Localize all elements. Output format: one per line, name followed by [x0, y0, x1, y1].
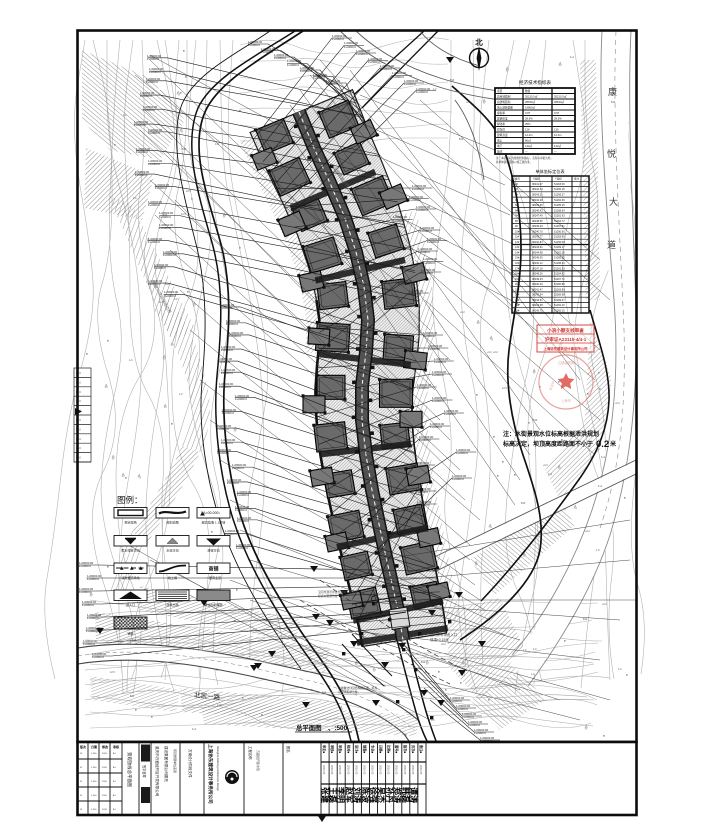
- svg-text:51260.80: 51260.80: [554, 282, 565, 286]
- svg-text:方案设计阶段文件: 方案设计阶段文件: [188, 749, 193, 778]
- svg-text:51263.99: 51263.99: [554, 235, 565, 239]
- svg-text:F+0000.0: F+0000.0: [237, 493, 249, 497]
- svg-text:2016.05: 2016.05: [338, 765, 342, 775]
- svg-text:备注■: 备注■: [419, 744, 424, 753]
- svg-text:F+0000.0: F+0000.0: [146, 80, 158, 84]
- svg-text:15#: 15#: [515, 256, 520, 260]
- svg-text:上海协东建筑设计事务所公司: 上海协东建筑设计事务所公司: [207, 744, 214, 804]
- svg-text:比例■: 比例■: [387, 745, 392, 753]
- svg-text:备注: 备注: [574, 177, 580, 181]
- svg-text:+0.2: +0.2: [585, 530, 590, 533]
- svg-text:F+0000.0: F+0000.0: [344, 45, 356, 49]
- svg-text:51267.81: 51267.81: [554, 224, 565, 228]
- svg-text:126: 126: [525, 128, 530, 132]
- svg-text:F+0000.0: F+0000.0: [415, 464, 427, 468]
- svg-text:F+0000.0: F+0000.0: [219, 385, 231, 389]
- svg-text:项目管理单位盖章: 项目管理单位盖章: [173, 749, 178, 773]
- svg-text:签字盖章: 签字盖章: [142, 765, 147, 779]
- svg-text:16#: 16#: [515, 261, 520, 265]
- svg-text:+0.2: +0.2: [493, 351, 498, 354]
- svg-text:51268.44: 51268.44: [554, 261, 565, 265]
- svg-text:页次■: 页次■: [411, 745, 416, 753]
- svg-text:2016.05: 2016.05: [411, 765, 415, 775]
- svg-text:坝顶+0.15米: 坝顶+0.15米: [430, 637, 449, 642]
- svg-text:出入口: 出入口: [126, 602, 135, 607]
- svg-text:版次■: 版次■: [403, 745, 408, 753]
- svg-text:14#: 14#: [515, 251, 520, 255]
- svg-text:51260.90: 51260.90: [554, 229, 565, 233]
- svg-text:各单体建筑面积以施工图为准。: 各单体建筑面积以施工图为准。: [496, 160, 532, 164]
- svg-text:2016.05: 2016.05: [322, 765, 326, 775]
- svg-text:38246.12: 38246.12: [532, 261, 543, 265]
- svg-text:F+1: F+1: [548, 473, 553, 476]
- svg-text:F+0000.0: F+0000.0: [432, 373, 444, 377]
- svg-text:+0.2: +0.2: [460, 311, 465, 314]
- svg-text:F+0000.0: F+0000.0: [235, 397, 247, 401]
- svg-text:2016.05: 2016.05: [387, 765, 391, 775]
- svg-text:B1F: B1F: [521, 502, 526, 505]
- svg-text:—: —: [525, 151, 528, 154]
- svg-text:51268.54: 51268.54: [554, 208, 565, 212]
- svg-text:F+0000.0: F+0000.0: [221, 441, 233, 445]
- svg-text:38248.26: 38248.26: [532, 272, 543, 276]
- svg-text:20#: 20#: [515, 282, 520, 286]
- svg-text:F+0000.0: F+0000.0: [140, 94, 152, 98]
- svg-text:F+0000.0: F+0000.0: [261, 50, 273, 54]
- svg-text:12.0m: 12.0m: [525, 133, 533, 137]
- svg-text:F+0000.0: F+0000.0: [416, 490, 428, 494]
- svg-text:上海市: 上海市: [561, 398, 571, 403]
- svg-text:2016: 2016: [102, 781, 108, 783]
- svg-text:12.5: 12.5: [186, 190, 191, 193]
- svg-text:楼号: 楼号: [515, 177, 521, 181]
- svg-text:建设集团有限公司委托: 建设集团有限公司委托: [164, 746, 169, 782]
- svg-text:F+0000.0: F+0000.0: [409, 198, 421, 202]
- svg-text:51263.89: 51263.89: [554, 287, 565, 291]
- svg-text:F+0000.0: F+0000.0: [380, 67, 392, 71]
- svg-text:建筑密度: 建筑密度: [497, 117, 508, 121]
- svg-text:1:500: 1:500: [91, 767, 97, 769]
- svg-text:雨水排放方向: 雨水排放方向: [121, 548, 140, 553]
- svg-text:B1F: B1F: [182, 148, 187, 151]
- svg-text:总建筑面积: 总建筑面积: [497, 100, 511, 104]
- svg-text:F+1: F+1: [215, 143, 220, 146]
- svg-text:28.5%: 28.5%: [525, 117, 533, 121]
- svg-text:康: 康: [608, 86, 617, 97]
- svg-text:51267.71: 51267.71: [554, 277, 565, 281]
- svg-text:悦: 悦: [607, 148, 616, 159]
- svg-text:38243.91: 38243.91: [532, 245, 543, 249]
- svg-text:F+0000.0: F+0000.0: [218, 360, 230, 364]
- svg-text:F+0000.0: F+0000.0: [149, 70, 161, 74]
- svg-text:F+0000.0: F+0000.0: [392, 75, 404, 79]
- svg-text:0.2: 0.2: [596, 439, 609, 450]
- svg-text:+0.2: +0.2: [441, 643, 446, 646]
- svg-text:28.5%: 28.5%: [554, 117, 562, 121]
- svg-text:商业内街铺装: 商业内街铺装: [204, 602, 223, 607]
- svg-text:F+0000.0: F+0000.0: [416, 90, 428, 94]
- svg-text:1:500: 1:500: [91, 809, 97, 811]
- svg-text:28640㎡: 28640㎡: [554, 100, 564, 104]
- svg-text:F+0000.0: F+0000.0: [83, 642, 95, 646]
- svg-text:数值: 数值: [525, 89, 531, 93]
- svg-text:建筑出挑: 建筑出挑: [166, 602, 178, 607]
- svg-text:设计■: 设计■: [354, 745, 359, 753]
- svg-text:F+0000.0: F+0000.0: [134, 123, 146, 127]
- svg-text:38244.28: 38244.28: [532, 198, 543, 202]
- svg-text:F+0000.0: F+0000.0: [222, 411, 234, 415]
- svg-text:版次: 版次: [80, 744, 86, 749]
- svg-text:滑坡方向: 滑坡方向: [207, 548, 219, 553]
- svg-text:51264.62: 51264.62: [554, 272, 565, 276]
- svg-text:B1F: B1F: [163, 214, 168, 217]
- svg-text:24#: 24#: [515, 303, 520, 307]
- svg-text:38244.98: 38244.98: [532, 251, 543, 255]
- svg-text:2016.05: 2016.05: [395, 765, 399, 775]
- svg-text:2016.05: 2016.05: [346, 765, 350, 775]
- svg-text:25#: 25#: [515, 308, 520, 312]
- svg-text:铺装: 铺装: [127, 631, 133, 636]
- svg-text:日期■: 日期■: [379, 745, 384, 753]
- svg-text:+0.2: +0.2: [543, 464, 548, 467]
- svg-text:51261.53: 51261.53: [554, 266, 565, 270]
- svg-text:51263.09: 51263.09: [554, 182, 565, 186]
- svg-text:F+0000.0: F+0000.0: [79, 590, 91, 594]
- svg-text:F+0000.0: F+0000.0: [326, 82, 338, 86]
- svg-text:35210.5㎡: 35210.5㎡: [525, 95, 538, 99]
- svg-text:F+0000.0: F+0000.0: [235, 508, 247, 512]
- svg-text:28640㎡: 28640㎡: [525, 100, 535, 104]
- svg-text:F+0000.0: F+0000.0: [236, 546, 248, 550]
- svg-text:+0.2: +0.2: [487, 351, 492, 354]
- svg-text:谭涛: 谭涛: [409, 787, 419, 803]
- svg-text:小浪小额支线审查: 小浪小额支线审查: [547, 327, 584, 334]
- svg-text:上海协东建筑设计事务所公司: 上海协东建筑设计事务所公司: [543, 346, 588, 351]
- svg-text:F+1: F+1: [598, 485, 603, 488]
- svg-text:2016: 2016: [102, 753, 108, 755]
- svg-text:F+0000.0: F+0000.0: [148, 203, 160, 207]
- svg-text:F+0000.0: F+0000.0: [82, 603, 94, 607]
- svg-text:38243.61: 38243.61: [532, 298, 543, 302]
- svg-text:38240.70: 38240.70: [532, 229, 543, 233]
- svg-text:F+0000.0: F+0000.0: [86, 629, 98, 633]
- svg-text:图号■: 图号■: [395, 745, 400, 753]
- svg-text:2016.05: 2016.05: [379, 765, 383, 775]
- svg-text:F+0000.0: F+0000.0: [444, 412, 456, 416]
- svg-text:图名: 图名: [286, 746, 291, 753]
- svg-text:2016.05: 2016.05: [371, 765, 375, 775]
- svg-text:19#: 19#: [515, 277, 520, 281]
- svg-text:2016.05: 2016.05: [403, 765, 407, 775]
- svg-text:F+1: F+1: [322, 691, 327, 694]
- svg-text:标高决定，坝顶高度距路面不小于: 标高决定，坝顶高度距路面不小于: [502, 440, 593, 448]
- svg-text:—: —: [554, 151, 557, 154]
- svg-text:B1F: B1F: [611, 101, 616, 104]
- svg-text:修改: 修改: [101, 744, 109, 749]
- svg-text:+0.2: +0.2: [602, 603, 607, 606]
- svg-text:0.87: 0.87: [554, 111, 560, 115]
- svg-text:F+0000.0: F+0000.0: [227, 481, 239, 485]
- svg-text:F+0000.0: F+0000.0: [452, 477, 464, 481]
- svg-text:图例：: 图例：: [117, 495, 143, 505]
- svg-text:F+0000.0: F+0000.0: [423, 261, 435, 265]
- svg-text:万盛经开区水街: 万盛经开区水街: [256, 750, 261, 771]
- svg-text:审核■: 审核■: [330, 745, 335, 753]
- svg-text:消防登高场地: 消防登高场地: [121, 575, 140, 580]
- svg-text:2016.05: 2016.05: [419, 765, 423, 775]
- svg-text:F+0000.0: F+0000.0: [163, 253, 175, 257]
- svg-text:51269.17: 51269.17: [554, 245, 565, 249]
- svg-text:142㎡: 142㎡: [525, 144, 532, 148]
- svg-text:38249.33: 38249.33: [532, 277, 543, 281]
- svg-text:2016: 2016: [102, 809, 108, 811]
- svg-text:停车位: 停车位: [497, 128, 505, 132]
- svg-text:51262.16: 51262.16: [554, 303, 565, 307]
- svg-text:F+0000.0: F+0000.0: [420, 229, 432, 233]
- svg-text:11#: 11#: [515, 235, 520, 239]
- svg-text:51266.08: 51266.08: [554, 240, 565, 244]
- svg-text:总平面图 、:500: 总平面图 、:500: [296, 723, 348, 732]
- svg-text:22#: 22#: [515, 293, 520, 297]
- svg-text:38243.21: 38243.21: [532, 193, 543, 197]
- svg-text:审核: 审核: [113, 744, 119, 749]
- svg-text:12#: 12#: [515, 240, 520, 244]
- svg-text:23#: 23#: [515, 298, 520, 302]
- svg-text:F+0000.0: F+0000.0: [221, 371, 233, 375]
- svg-text:审查■: 审查■: [338, 745, 343, 753]
- svg-text:F+0000.0: F+0000.0: [274, 56, 286, 60]
- svg-text:142㎡: 142㎡: [554, 144, 561, 148]
- svg-text:18#: 18#: [515, 272, 520, 276]
- svg-text:建筑高度: 建筑高度: [497, 133, 508, 137]
- svg-text:+0.2: +0.2: [466, 101, 471, 104]
- svg-text:F+0000.0: F+0000.0: [148, 131, 160, 135]
- svg-text:F+0000.0: F+0000.0: [148, 240, 160, 244]
- svg-text:38242.54: 38242.54: [532, 293, 543, 297]
- svg-text:F+1: F+1: [570, 56, 575, 59]
- svg-text:51265.45: 51265.45: [554, 203, 565, 207]
- svg-text:38245.05: 38245.05: [532, 256, 543, 260]
- svg-text:F+0000.0: F+0000.0: [417, 386, 429, 390]
- svg-text:工程名称: 工程名称: [248, 746, 253, 760]
- svg-text:注：水街景观水位标高根据泄洪规划: 注：水街景观水位标高根据泄洪规划: [503, 430, 599, 438]
- svg-text:F+0000.0: F+0000.0: [221, 348, 233, 352]
- svg-text:2016.05: 2016.05: [362, 765, 366, 775]
- svg-text:沪审证A23110-4/4-1: 沪审证A23110-4/4-1: [545, 336, 587, 343]
- svg-text:现状建筑: 现状建筑: [124, 520, 136, 525]
- svg-text:12.5: 12.5: [502, 387, 507, 390]
- svg-text:38248.56: 38248.56: [532, 219, 543, 223]
- svg-text:38242.84: 38242.84: [532, 240, 543, 244]
- svg-text:38245.35: 38245.35: [532, 203, 543, 207]
- svg-text:王磊: 王磊: [328, 787, 337, 803]
- svg-text:校对■: 校对■: [346, 745, 351, 753]
- svg-text:1:500: 1:500: [91, 781, 97, 783]
- svg-text:F+0000.0: F+0000.0: [404, 82, 416, 86]
- svg-text:38247.49: 38247.49: [532, 214, 543, 218]
- svg-text:51266.98: 51266.98: [554, 293, 565, 297]
- svg-text:38249.63: 38249.63: [532, 224, 543, 228]
- svg-text:21#: 21#: [515, 287, 520, 291]
- svg-text:B1F: B1F: [132, 639, 137, 642]
- svg-text:12.0m: 12.0m: [554, 133, 562, 137]
- svg-text:F+1: F+1: [159, 301, 164, 304]
- svg-text:重庆市万盛经开区开发有限公司: 重庆市万盛经开区开发有限公司: [155, 746, 160, 797]
- svg-text:F+0000.0: F+0000.0: [220, 306, 232, 310]
- svg-text:F+0000.0: F+0000.0: [217, 451, 229, 455]
- svg-text:38240.40: 38240.40: [532, 282, 543, 286]
- svg-text:规划道路: 规划道路: [166, 520, 178, 525]
- svg-text:一层商业街: 一层商业街: [206, 575, 221, 580]
- svg-text:超高挡墙 1:1放坡: 超高挡墙 1:1放坡: [202, 520, 226, 525]
- svg-text:35210.5㎡: 35210.5㎡: [554, 95, 567, 99]
- svg-text:B1F: B1F: [533, 419, 538, 422]
- svg-text:38241.07: 38241.07: [532, 182, 543, 186]
- svg-text:F+0000.0: F+0000.0: [287, 63, 299, 67]
- svg-text:0.87: 0.87: [525, 111, 531, 115]
- svg-text:51261.63: 51261.63: [554, 214, 565, 218]
- svg-text:12.5: 12.5: [217, 704, 222, 707]
- svg-text:日期: 日期: [91, 744, 97, 749]
- svg-text:F+0000.0: F+0000.0: [456, 707, 468, 711]
- svg-text:地下: 地下: [497, 144, 503, 148]
- svg-text:经济技术指标表: 经济技术指标表: [519, 79, 552, 86]
- svg-text:1:500: 1:500: [91, 753, 97, 755]
- svg-text:38246.42: 38246.42: [532, 208, 543, 212]
- svg-text:38242.14: 38242.14: [532, 187, 543, 191]
- svg-text:地上: 地上: [497, 139, 503, 143]
- svg-text:86㎡: 86㎡: [525, 139, 531, 143]
- svg-text:35%: 35%: [525, 122, 531, 126]
- svg-text:38244.68: 38244.68: [532, 303, 543, 307]
- svg-text:项目: 项目: [497, 89, 503, 93]
- svg-text:注：本表指标为规划控制指标，实际以审批为准。: 注：本表指标为规划控制指标，实际以审批为准。: [496, 156, 553, 160]
- svg-text:商铺: 商铺: [208, 566, 218, 573]
- svg-text:F+0000.0: F+0000.0: [432, 399, 444, 403]
- svg-text:19860㎡: 19860㎡: [525, 106, 535, 110]
- svg-text:F+0000.0: F+0000.0: [237, 519, 249, 523]
- svg-text:F+0000.0: F+0000.0: [248, 43, 260, 47]
- svg-text:51265.35: 51265.35: [554, 256, 565, 260]
- svg-text:地上建筑面积: 地上建筑面积: [497, 106, 513, 110]
- svg-text:2016.05: 2016.05: [354, 765, 358, 775]
- svg-text:挡土墙: 挡土墙: [168, 575, 177, 580]
- svg-text:F+0000.0: F+0000.0: [154, 266, 166, 270]
- svg-text:F+0000.0: F+0000.0: [79, 564, 91, 568]
- svg-text:F+0000.0: F+0000.0: [135, 173, 147, 177]
- svg-text:制图■: 制图■: [362, 745, 367, 753]
- svg-text:2016: 2016: [102, 795, 108, 797]
- svg-text:17#: 17#: [515, 266, 520, 270]
- svg-text:F+0000.0: F+0000.0: [87, 616, 99, 620]
- svg-text:总用地面积: 总用地面积: [497, 95, 511, 99]
- svg-text:F+0000.0: F+0000.0: [474, 731, 486, 735]
- svg-text:B1F: B1F: [583, 618, 588, 621]
- svg-text:单体坐标定位表: 单体坐标定位表: [535, 168, 565, 175]
- svg-text:10#: 10#: [515, 229, 520, 233]
- svg-text:F+1: F+1: [192, 728, 197, 731]
- svg-text:X坐标: X坐标: [533, 177, 540, 181]
- svg-text:F+0000.0: F+0000.0: [418, 250, 430, 254]
- svg-text:F+0000.0: F+0000.0: [456, 451, 468, 455]
- svg-text:38241.47: 38241.47: [532, 287, 543, 291]
- svg-text:51266.18: 51266.18: [554, 187, 565, 191]
- svg-text:12.5: 12.5: [181, 213, 186, 216]
- svg-text:13#: 13#: [515, 245, 520, 249]
- svg-text:F+0000.0: F+0000.0: [92, 655, 104, 659]
- svg-text:38247.19: 38247.19: [532, 266, 543, 270]
- svg-text:北: 北: [475, 37, 483, 47]
- svg-text:2016.05: 2016.05: [330, 765, 334, 775]
- svg-text:38245.75: 38245.75: [532, 308, 543, 312]
- svg-text:F+0000.0: F+0000.0: [87, 577, 99, 581]
- svg-text:51262.26: 51262.26: [554, 251, 565, 255]
- svg-text:容积率: 容积率: [497, 111, 505, 115]
- svg-text:绿化率: 绿化率: [497, 122, 505, 126]
- svg-text:Shanghai XieDong Architecture: Shanghai XieDong Architecture Design: [216, 746, 220, 791]
- svg-text:51264.72: 51264.72: [554, 219, 565, 223]
- svg-text:51262.36: 51262.36: [554, 198, 565, 202]
- svg-text:专业■: 专业■: [371, 745, 376, 753]
- svg-text:51269.07: 51269.07: [554, 298, 565, 302]
- svg-text:F+1: F+1: [601, 456, 606, 459]
- svg-text:F+0000.0: F+0000.0: [393, 219, 405, 223]
- svg-text:大: 大: [609, 196, 618, 207]
- svg-text:B1F: B1F: [459, 138, 464, 141]
- svg-text:F+0000.0: F+0000.0: [136, 150, 148, 154]
- svg-text:B1F: B1F: [450, 79, 455, 82]
- svg-text:Y坐标: Y坐标: [555, 177, 562, 181]
- svg-text:米: 米: [610, 440, 616, 448]
- svg-text:注册建筑师: 注册建筑师: [558, 360, 575, 365]
- svg-text:1:500: 1:500: [91, 795, 97, 797]
- svg-text:审定■: 审定■: [322, 745, 327, 753]
- svg-text:B1F: B1F: [165, 283, 170, 286]
- svg-text:水流方向: 水流方向: [166, 548, 178, 553]
- svg-text:标高以实测为准: 标高以实测为准: [318, 594, 338, 598]
- svg-text:2016: 2016: [102, 767, 108, 769]
- svg-text:F+0000.0: F+0000.0: [226, 322, 238, 326]
- svg-text:B1F: B1F: [130, 695, 135, 698]
- svg-text:B1F: B1F: [421, 661, 426, 664]
- svg-text:道: 道: [607, 239, 616, 250]
- svg-text:备注: 备注: [497, 150, 503, 154]
- svg-text:126: 126: [554, 128, 559, 132]
- svg-text:F+0000.0: F+0000.0: [468, 723, 480, 727]
- svg-text:F+0000.0: F+0000.0: [313, 76, 325, 80]
- svg-text:临时停车场出入口: 临时停车场出入口: [430, 632, 457, 637]
- svg-text:+0.2: +0.2: [615, 402, 620, 405]
- svg-text:51265.25: 51265.25: [554, 308, 565, 312]
- svg-text:F+0000.0: F+0000.0: [332, 37, 344, 41]
- svg-text:12.5: 12.5: [110, 671, 115, 674]
- svg-text:F+0000.0: F+0000.0: [148, 162, 160, 166]
- svg-text:51269.27: 51269.27: [554, 193, 565, 197]
- svg-text:F+0000.0: F+0000.0: [143, 108, 155, 112]
- svg-text:景观放线总平面图: 景观放线总平面图: [126, 752, 133, 788]
- svg-text:F+0000.0: F+0000.0: [300, 69, 312, 73]
- svg-text:38241.77: 38241.77: [532, 235, 543, 239]
- svg-text:以现场实测为准。: 以现场实测为准。: [338, 690, 360, 694]
